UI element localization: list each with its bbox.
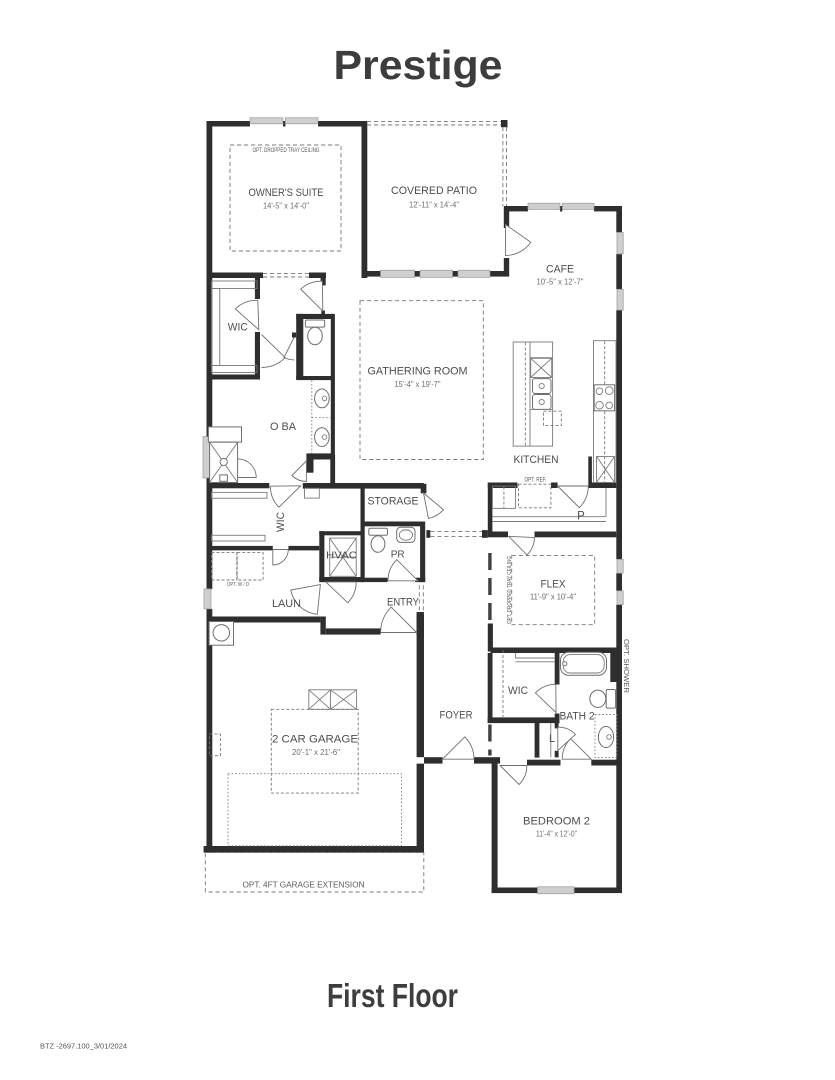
- svg-text:15'-4" x 19'-7": 15'-4" x 19'-7": [395, 380, 441, 389]
- svg-text:20'-1" x 21'-6": 20'-1" x 21'-6": [292, 748, 340, 757]
- svg-text:OPT. DROPPED TRAY CEILING: OPT. DROPPED TRAY CEILING: [253, 147, 320, 154]
- svg-text:OPT. 4FT GARAGE EXTENSION: OPT. 4FT GARAGE EXTENSION: [243, 881, 365, 890]
- svg-text:KITCHEN: KITCHEN: [514, 454, 559, 466]
- svg-text:LAUN: LAUN: [272, 598, 301, 610]
- svg-text:BEDROOM 2: BEDROOM 2: [523, 816, 590, 828]
- svg-text:HVAC: HVAC: [326, 550, 357, 562]
- svg-text:COVERED PATIO: COVERED PATIO: [391, 185, 477, 197]
- svg-text:BATH 2: BATH 2: [560, 711, 595, 723]
- svg-text:FOYER: FOYER: [440, 710, 473, 722]
- svg-text:2 CAR GARAGE: 2 CAR GARAGE: [272, 734, 358, 746]
- svg-text:OPT. W / D: OPT. W / D: [227, 582, 249, 588]
- svg-text:PR: PR: [391, 549, 405, 561]
- svg-text:ENTRY: ENTRY: [387, 597, 420, 609]
- svg-text:L: L: [549, 733, 555, 745]
- svg-text:WIC: WIC: [228, 322, 248, 334]
- svg-text:CAFE: CAFE: [546, 264, 574, 276]
- svg-text:Prestige: Prestige: [334, 42, 503, 88]
- svg-text:12'-11" x 14'-4": 12'-11" x 14'-4": [409, 201, 459, 210]
- svg-text:BTZ -2697.100_3/01/2024: BTZ -2697.100_3/01/2024: [40, 1042, 127, 1051]
- svg-text:WIC: WIC: [508, 685, 528, 697]
- svg-text:OPT. DROPPED TRAY CEILING: OPT. DROPPED TRAY CEILING: [507, 556, 513, 624]
- svg-text:OPT. SHOWER: OPT. SHOWER: [622, 639, 629, 693]
- svg-text:FLEX: FLEX: [541, 579, 567, 591]
- svg-text:OPT. REF.: OPT. REF.: [525, 477, 547, 484]
- svg-text:GATHERING ROOM: GATHERING ROOM: [368, 366, 468, 378]
- svg-text:First Floor: First Floor: [327, 977, 458, 1014]
- svg-text:O BA: O BA: [270, 421, 297, 433]
- svg-text:11'-4" x 12'-0": 11'-4" x 12'-0": [536, 830, 577, 839]
- svg-text:11'-9" x 10'-4": 11'-9" x 10'-4": [530, 593, 576, 602]
- svg-text:STORAGE: STORAGE: [368, 496, 419, 508]
- svg-text:14'-5" x 14'-0": 14'-5" x 14'-0": [263, 202, 309, 211]
- svg-text:WIC: WIC: [275, 512, 287, 532]
- svg-text:OWNER'S SUITE: OWNER'S SUITE: [249, 187, 324, 199]
- svg-text:P: P: [577, 511, 585, 523]
- svg-text:10'-5" x 12'-7": 10'-5" x 12'-7": [537, 278, 584, 287]
